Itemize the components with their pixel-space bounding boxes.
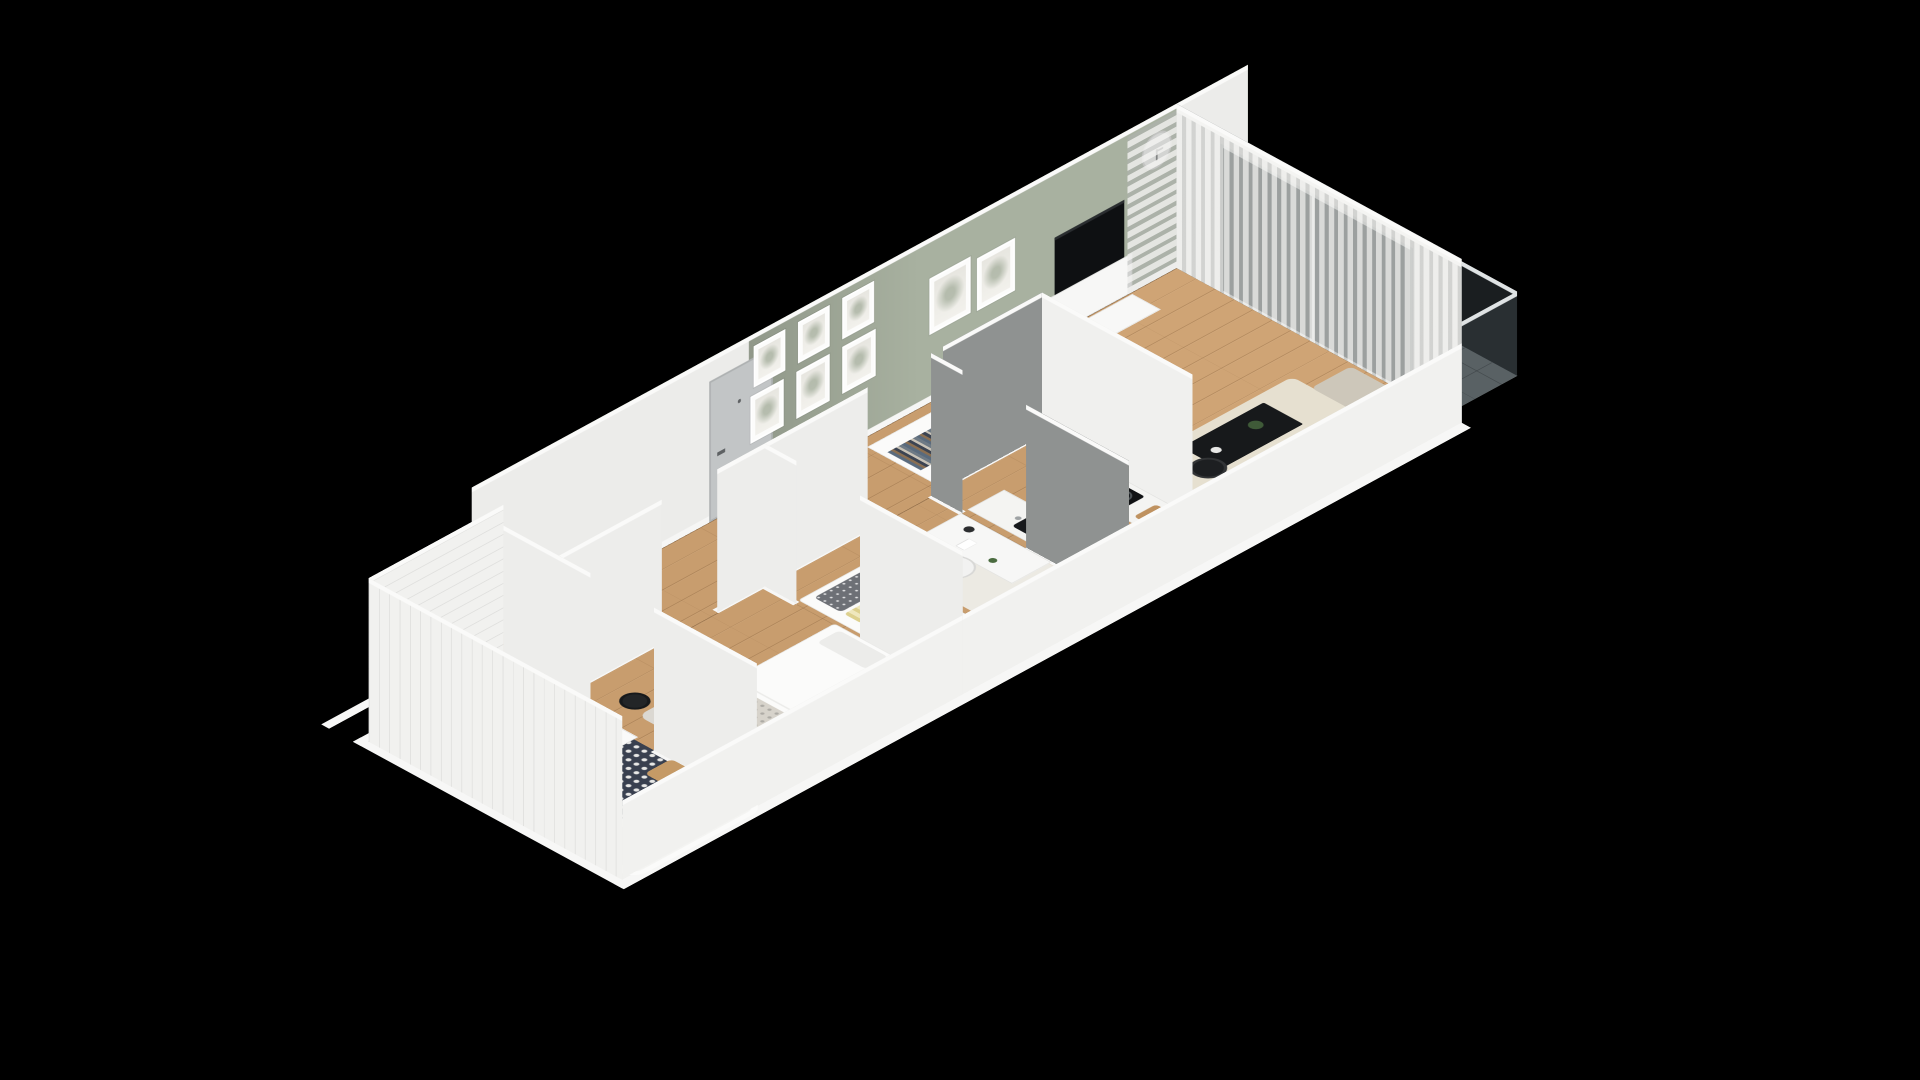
table-decor-icon xyxy=(1208,446,1224,455)
frame-art xyxy=(847,337,871,386)
back-wall-curtain xyxy=(1127,110,1176,295)
frame-art xyxy=(801,362,825,411)
black-backdrop xyxy=(0,0,1920,1080)
frame-art xyxy=(982,246,1011,303)
bird-figurine-icon xyxy=(986,557,999,564)
apartment-floorplan xyxy=(337,229,1533,880)
door-peephole-icon xyxy=(738,398,741,403)
frame-art xyxy=(755,387,779,436)
frame-art xyxy=(934,265,966,327)
kitchen-partition-a xyxy=(931,353,963,514)
bedroom-partition-a xyxy=(765,444,797,605)
door-handle xyxy=(717,448,725,456)
frame-art xyxy=(803,313,825,355)
papers xyxy=(956,539,977,550)
desk-lamp-icon xyxy=(961,525,977,534)
frame-art xyxy=(847,289,869,331)
frame-art xyxy=(758,337,780,379)
table-plant-icon xyxy=(1245,419,1267,431)
